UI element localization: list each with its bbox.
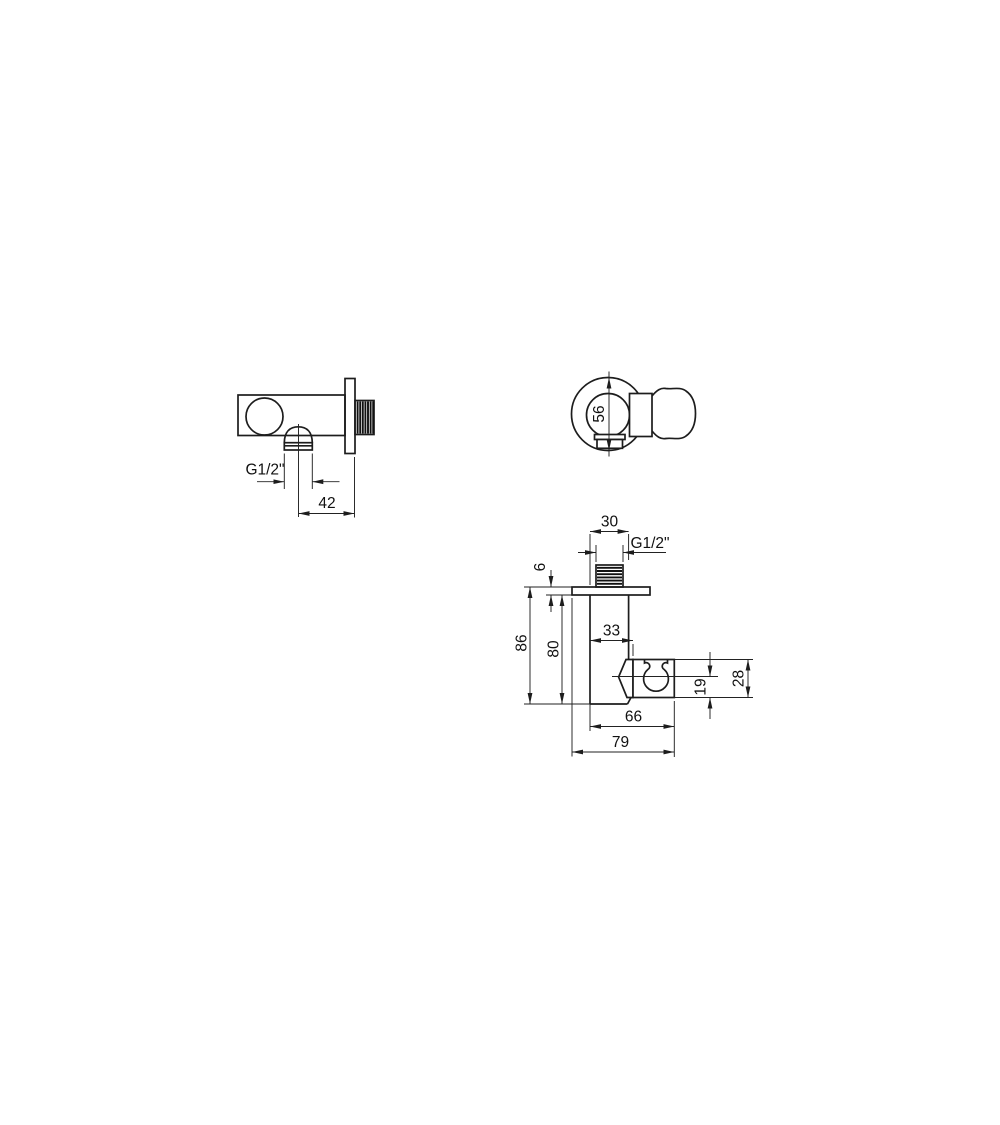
dim-flange-thickness-label: 6 [532, 563, 549, 572]
body-foot-step [628, 698, 632, 705]
side-view: G1/2" 42 [238, 379, 374, 518]
holder-cradle-profile [652, 388, 696, 438]
dim-total-height-label: 86 [514, 634, 531, 651]
dim-flange-diameter-label: 56 [591, 405, 608, 422]
inlet-thread-hatching [597, 568, 622, 584]
dim-outlet-thread-label: G1/2" [245, 462, 284, 479]
wall-flange-plate [345, 379, 355, 454]
holder-mount-block [630, 394, 653, 437]
dim-axis-to-bottom-label: 19 [693, 678, 710, 695]
profile-view: 30 G1/2" 6 86 80 33 19 28 [514, 514, 754, 758]
holder-cone-tip [619, 660, 633, 698]
dim-body-width-label: 30 [601, 514, 619, 531]
dim-holder-width-label: 66 [625, 709, 642, 726]
front-view: 56 [572, 372, 696, 457]
dim-holder-height-label: 28 [731, 670, 748, 687]
technical-drawing: G1/2" 42 56 [0, 0, 1000, 1125]
dim-wall-distance-label: 42 [318, 495, 335, 512]
spec-sheet-page: G1/2" 42 56 [0, 0, 1000, 1125]
outlet-nut-front [597, 440, 623, 449]
dim-holder-offset-label: 33 [603, 623, 620, 640]
dim-body-height-label: 80 [546, 640, 563, 658]
dim-total-width-label: 79 [612, 734, 629, 751]
dim-thread-label: G1/2" [630, 535, 669, 552]
elbow-body-bore [246, 398, 283, 435]
wall-flange-plate [572, 587, 650, 595]
inlet-thread-hatching [358, 402, 374, 434]
